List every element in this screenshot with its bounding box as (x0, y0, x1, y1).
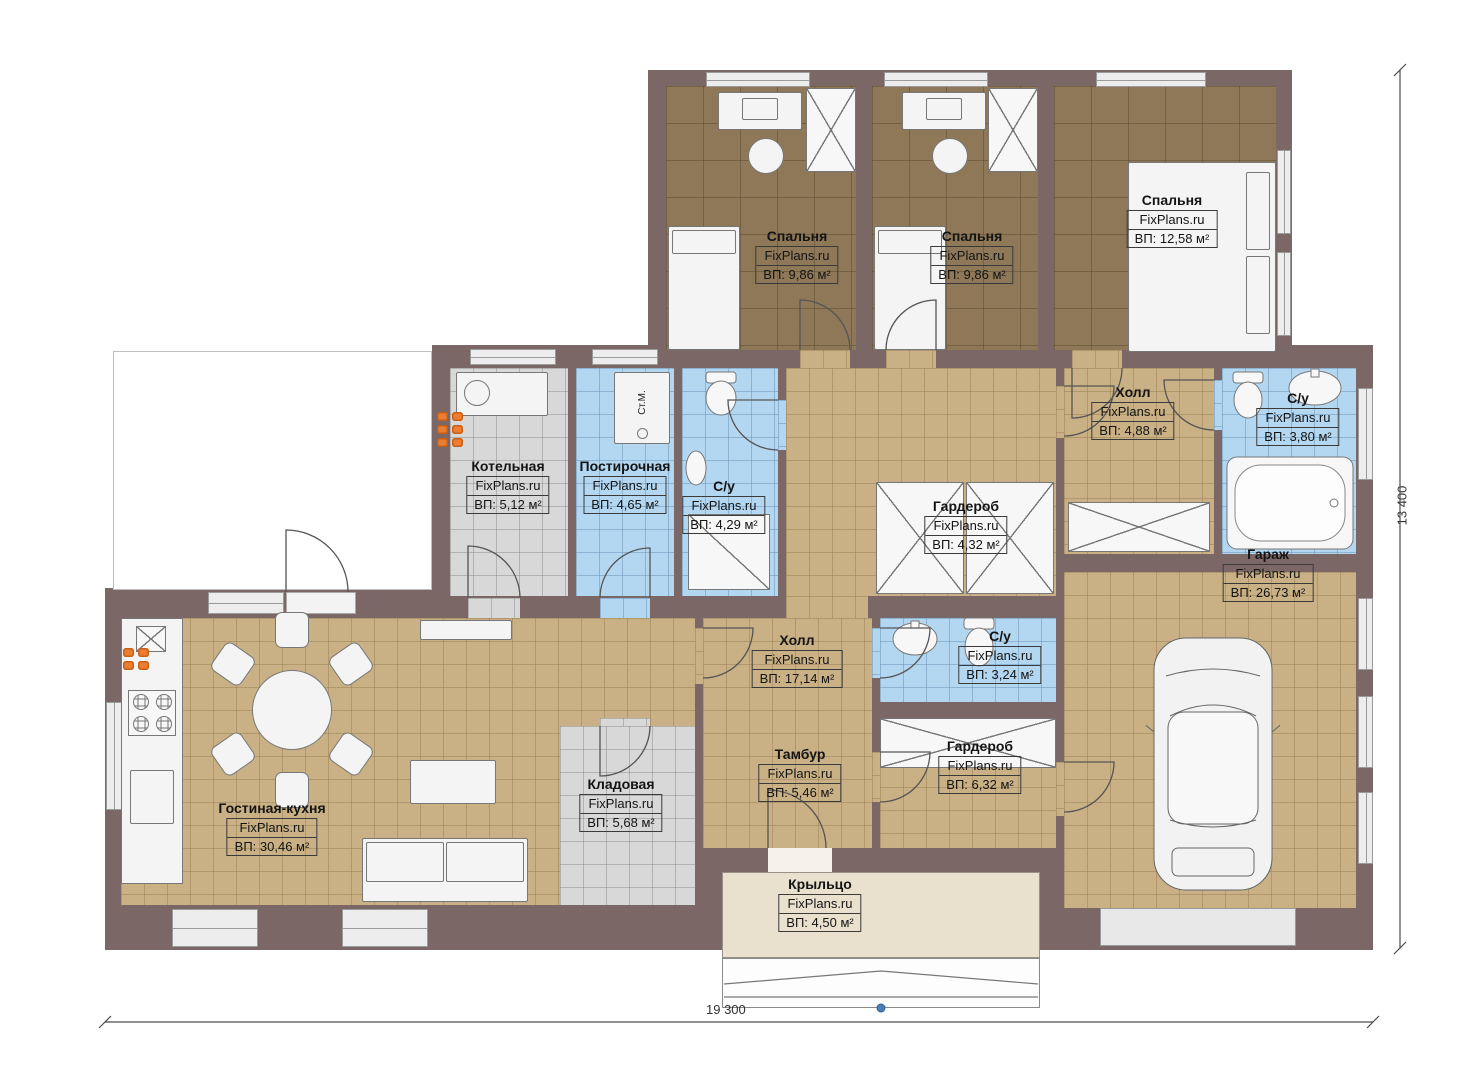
room-name: Гараж (1223, 546, 1314, 562)
window-bedroom-2 (884, 72, 988, 87)
laptop-1 (742, 98, 778, 120)
wardrobe-bedroom-1 (806, 88, 856, 172)
watermark: FixPlans.ru (467, 477, 548, 495)
chair-2 (932, 138, 968, 174)
window-bedroom-1 (706, 72, 810, 87)
washing-machine-label: Ст.М. (614, 372, 670, 432)
room-name: Тамбур (758, 746, 841, 762)
watermark: FixPlans.ru (584, 477, 665, 495)
door-gap-laundry (600, 598, 650, 618)
door-gap-wardrobe-2 (872, 752, 880, 802)
window-bedroom-3-right-b (1277, 252, 1291, 336)
room-label-hall-main: Холл FixPlans.ruВП: 17,14 м² (752, 632, 843, 688)
washing-machine-knob-icon (637, 428, 648, 439)
room-label-bedroom-3: Спальня FixPlans.ruВП: 12,58 м² (1127, 192, 1218, 248)
room-label-garage: Гараж FixPlans.ruВП: 26,73 м² (1223, 546, 1314, 602)
floor-plan: Ст.М. (0, 0, 1474, 1080)
door-gap-bathroom-1 (778, 400, 786, 450)
boiler-dial (464, 380, 490, 406)
terrace-door-gap (286, 592, 356, 614)
opening-corridor-hall (786, 596, 868, 618)
window-bedroom-3-top (1096, 72, 1206, 87)
bed-3-pillow-a (1246, 172, 1270, 250)
room-area: ВП: 30,46 м² (228, 837, 317, 856)
watermark: FixPlans.ru (1224, 565, 1313, 583)
room-name: Холл (752, 632, 843, 648)
room-area: ВП: 9,86 м² (931, 265, 1012, 284)
watermark: FixPlans.ru (1092, 403, 1173, 421)
room-label-hall-small: Холл FixPlans.ruВП: 4,88 м² (1091, 384, 1174, 440)
room-label-living-kitchen: Гостиная-кухня FixPlans.ruВП: 30,46 м² (218, 800, 325, 856)
watermark: FixPlans.ru (683, 497, 764, 515)
watermark: FixPlans.ru (925, 517, 1006, 535)
window-laundry (592, 349, 658, 365)
watermark: FixPlans.ru (228, 819, 317, 837)
door-gap-garage (1056, 762, 1064, 816)
chair-1 (748, 138, 784, 174)
room-area: ВП: 6,32 м² (939, 775, 1020, 794)
window-garage-a (1358, 598, 1373, 670)
bed-1-pillow (672, 230, 736, 254)
coffee-table (410, 760, 496, 804)
garage-gate (1100, 908, 1296, 946)
watermark: FixPlans.ru (931, 247, 1012, 265)
room-name: Гостиная-кухня (218, 800, 325, 816)
room-area: ВП: 9,86 м² (756, 265, 837, 284)
room-area: ВП: 26,73 м² (1224, 583, 1313, 602)
room-name: Холл (1091, 384, 1174, 400)
room-area: ВП: 5,46 м² (759, 783, 840, 802)
room-area: ВП: 17,14 м² (753, 669, 842, 688)
watermark: FixPlans.ru (939, 757, 1020, 775)
window-living-left (106, 702, 122, 810)
window-living-bottom-a (172, 909, 258, 947)
dining-chair-1 (275, 612, 309, 648)
room-name: Гардероб (938, 738, 1021, 754)
room-label-laundry: Постирочная FixPlans.ruВП: 4,65 м² (580, 458, 671, 514)
room-area: ВП: 4,65 м² (584, 495, 665, 514)
floor-porch (722, 872, 1040, 958)
room-area: ВП: 4,50 м² (779, 913, 860, 932)
watermark: FixPlans.ru (1257, 409, 1338, 427)
bed-3-pillow-b (1246, 256, 1270, 334)
room-label-porch: Крыльцо FixPlans.ruВП: 4,50 м² (778, 876, 861, 932)
door-gap-bathroom-3 (872, 628, 880, 678)
window-living-bottom-b (342, 909, 428, 947)
room-label-bedroom-1: Спальня FixPlans.ruВП: 9,86 м² (755, 228, 838, 284)
room-label-storage: Кладовая FixPlans.ruВП: 5,68 м² (579, 776, 662, 832)
room-name: Котельная (466, 458, 549, 474)
porch-steps (722, 958, 1040, 1008)
entrance-door-gap (768, 848, 832, 872)
dimension-right: 13 400 (1394, 486, 1409, 526)
closet-hall-small (1068, 502, 1210, 552)
fridge (130, 770, 174, 824)
room-label-wardrobe-2: Гардероб FixPlans.ruВП: 6,32 м² (938, 738, 1021, 794)
room-name: Постирочная (580, 458, 671, 474)
watermark: FixPlans.ru (779, 895, 860, 913)
window-terrace-wall (208, 592, 284, 614)
room-name: Спальня (930, 228, 1013, 244)
watermark: FixPlans.ru (756, 247, 837, 265)
sofa-cushion-b (446, 842, 524, 882)
terrace-area (113, 351, 432, 590)
room-name: С/у (958, 628, 1041, 644)
room-label-vestibule: Тамбур FixPlans.ruВП: 5,46 м² (758, 746, 841, 802)
room-label-bathroom-1: С/у FixPlans.ruВП: 4,29 м² (682, 478, 765, 534)
room-area: ВП: 5,12 м² (467, 495, 548, 514)
dining-table (252, 670, 332, 750)
room-name: Спальня (1127, 192, 1218, 208)
room-area: ВП: 12,58 м² (1128, 229, 1217, 248)
door-gap-bedroom-3 (1072, 350, 1122, 368)
wardrobe-bedroom-2 (988, 88, 1038, 172)
room-name: Крыльцо (778, 876, 861, 892)
room-area: ВП: 3,80 м² (1257, 427, 1338, 446)
door-gap-hall-small (1056, 386, 1064, 438)
opening-living-hall (695, 628, 703, 684)
door-gap-bedroom-2 (886, 350, 936, 368)
window-garage-c (1358, 792, 1373, 864)
watermark: FixPlans.ru (1128, 211, 1217, 229)
room-label-bedroom-2: Спальня FixPlans.ruВП: 9,86 м² (930, 228, 1013, 284)
watermark: FixPlans.ru (959, 647, 1040, 665)
floor-garage (1064, 572, 1356, 908)
room-label-bathroom-2: С/у FixPlans.ruВП: 3,80 м² (1256, 390, 1339, 446)
room-name: С/у (682, 478, 765, 494)
room-name: Гардероб (924, 498, 1007, 514)
dimension-bottom: 19 300 (706, 1002, 746, 1017)
radiator-kitchen-icon (123, 648, 149, 670)
sofa-cushion-a (366, 842, 444, 882)
watermark: FixPlans.ru (759, 765, 840, 783)
window-bathroom-2 (1358, 388, 1373, 480)
door-gap-storage (600, 718, 650, 726)
room-area: ВП: 4,88 м² (1092, 421, 1173, 440)
room-area: ВП: 4,32 м² (925, 535, 1006, 554)
radiator-boiler-icon (437, 412, 463, 447)
room-label-wardrobe-1: Гардероб FixPlans.ruВП: 4,32 м² (924, 498, 1007, 554)
door-gap-bathroom-2 (1214, 380, 1222, 430)
window-garage-b (1358, 696, 1373, 768)
room-area: ВП: 4,29 м² (683, 515, 764, 534)
watermark: FixPlans.ru (580, 795, 661, 813)
laptop-2 (926, 98, 962, 120)
room-area: ВП: 3,24 м² (959, 665, 1040, 684)
room-label-bathroom-3: С/у FixPlans.ruВП: 3,24 м² (958, 628, 1041, 684)
room-name: Спальня (755, 228, 838, 244)
window-bedroom-3-right-a (1277, 150, 1291, 234)
window-boiler (470, 349, 556, 365)
stove (128, 690, 176, 736)
room-area: ВП: 5,68 м² (580, 813, 661, 832)
watermark: FixPlans.ru (753, 651, 842, 669)
door-gap-boiler (468, 598, 520, 618)
room-name: Кладовая (579, 776, 662, 792)
room-name: С/у (1256, 390, 1339, 406)
tv-cabinet (420, 620, 512, 640)
door-gap-bedroom-1 (800, 350, 850, 368)
room-label-boiler: Котельная FixPlans.ruВП: 5,12 м² (466, 458, 549, 514)
